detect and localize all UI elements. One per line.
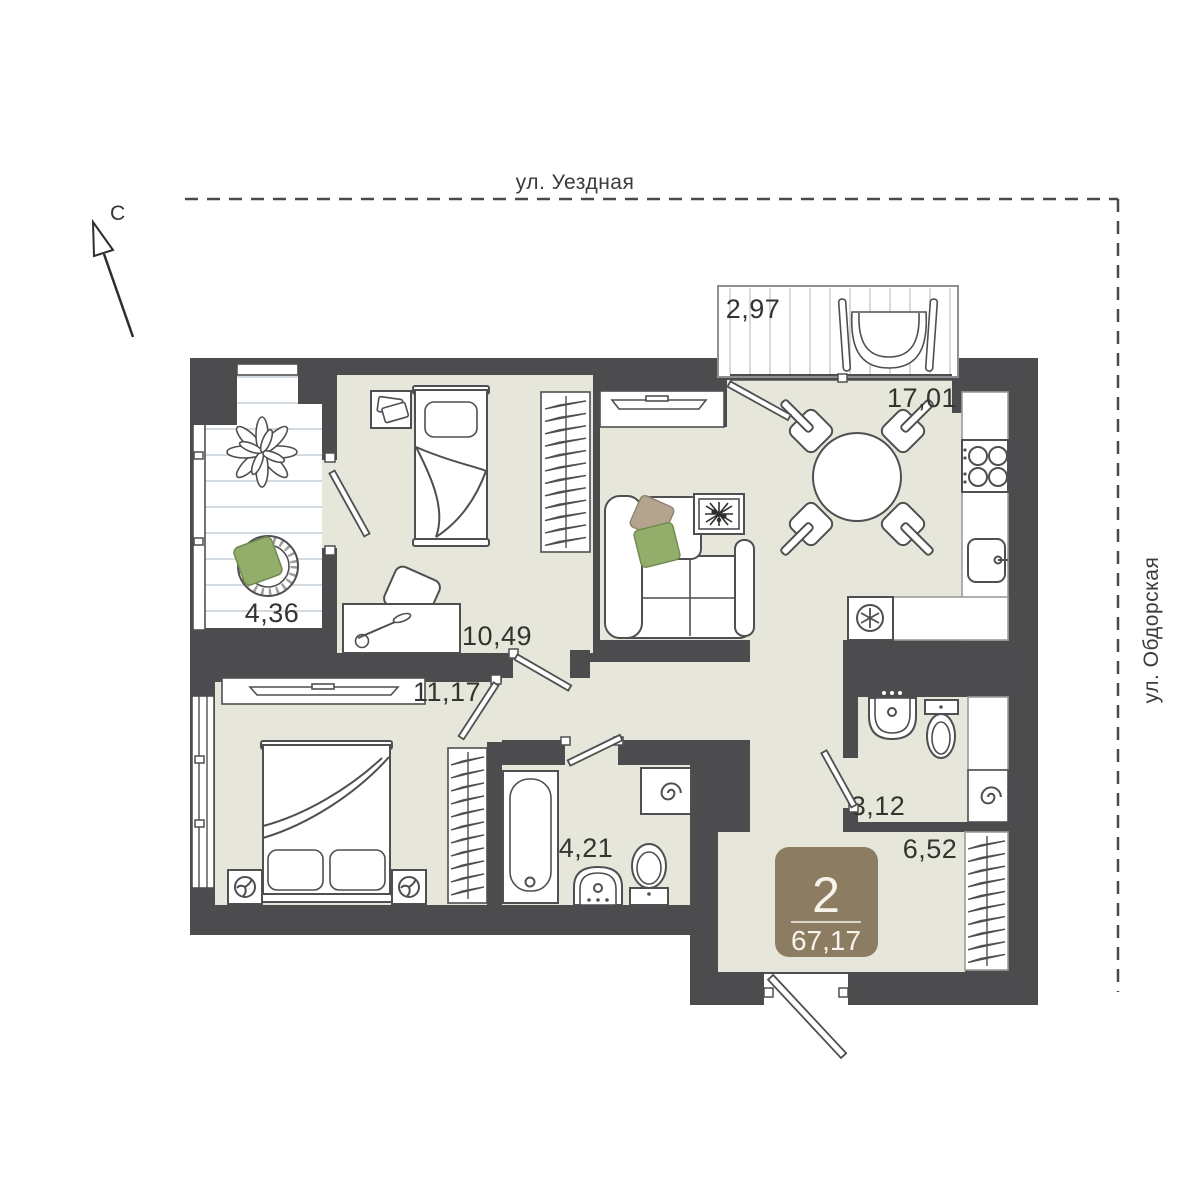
wc-cabinet (968, 697, 1008, 770)
wc-area: 3,12 (851, 791, 906, 821)
nightstand-lamp-icon (392, 870, 426, 904)
washing-machine-icon (968, 770, 1008, 822)
street-right-label: ул. Обдорская (1140, 557, 1163, 704)
toilet-icon (630, 844, 668, 905)
stove-icon (962, 440, 1008, 492)
north-arrow-line (104, 254, 133, 337)
north-arrow-head-icon (93, 222, 113, 256)
tv-shelf-icon (600, 391, 724, 427)
balcony-top-area: 2,97 (726, 294, 781, 324)
single-bed-icon (413, 386, 489, 546)
badge-total-area: 67,17 (791, 925, 861, 956)
door-frame (325, 453, 335, 462)
wall-stub-b (570, 650, 590, 678)
balcony-left-area: 4,36 (245, 598, 300, 628)
wardrobe-icon (965, 832, 1008, 970)
door-frame (325, 546, 335, 555)
street-right: ул. Обдорская (1118, 199, 1163, 992)
page-cutout-bottom (190, 935, 690, 1005)
door-frame (561, 737, 570, 745)
floor-plan-canvas: ул. Уездная ул. Обдорская С (0, 0, 1200, 1200)
bedroom-master-area: 11,17 (413, 677, 481, 707)
plant-icon (227, 417, 297, 487)
apartment-badge: 2 67,17 (775, 847, 878, 957)
wardrobe-icon (541, 392, 590, 552)
floor-plan-page: ул. Уездная ул. Обдорская С (0, 0, 1200, 1200)
badge-rooms-count: 2 (812, 867, 840, 923)
street-top: ул. Уездная (185, 171, 1118, 199)
north-label: С (110, 202, 125, 225)
door-frame (764, 988, 773, 997)
vanity-sink-icon (574, 867, 622, 905)
wall-chunk-t2 (298, 358, 322, 404)
street-top-label: ул. Уездная (516, 171, 635, 194)
rail-post (194, 452, 203, 459)
wardrobe-icon (448, 748, 487, 903)
room-balcony-top: 2,97 (718, 286, 958, 382)
window-post (838, 374, 847, 382)
bedroom-small-area: 10,49 (462, 621, 532, 651)
bathtub-icon (503, 771, 558, 903)
double-bed-icon (261, 741, 392, 902)
wall-chunk-tl (190, 358, 237, 425)
window-icon (192, 696, 214, 888)
toilet-icon (925, 700, 958, 758)
vent-hob-icon (848, 597, 893, 640)
wc-sink-icon (869, 691, 916, 739)
coffee-table-icon (694, 494, 744, 534)
hallway-area: 6,52 (903, 834, 958, 864)
nightstand-lamp-icon (228, 870, 262, 904)
kitchen-living-area: 17,01 (887, 383, 957, 413)
balcony-left-top-rail (237, 364, 298, 375)
bathroom-area: 4,21 (559, 833, 614, 863)
nightstand-icon (371, 391, 411, 428)
washing-machine-icon (641, 768, 691, 814)
tv-console-icon (222, 678, 425, 704)
door-frame (839, 988, 848, 997)
north-arrow: С (93, 202, 133, 337)
rail-post (194, 538, 203, 545)
